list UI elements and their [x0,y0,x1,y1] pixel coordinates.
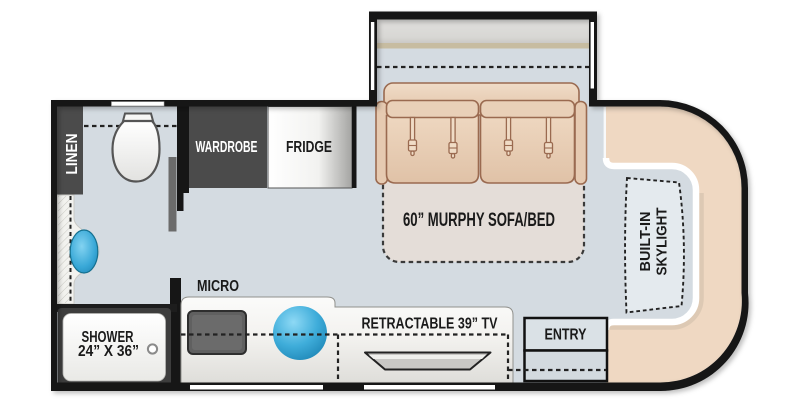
svg-text:24” X 36”: 24” X 36” [78,343,139,360]
svg-text:RETRACTABLE 39” TV: RETRACTABLE 39” TV [362,316,498,333]
svg-text:ENTRY: ENTRY [545,327,588,344]
svg-text:WARDROBE: WARDROBE [196,139,258,156]
svg-text:LINEN: LINEN [64,134,81,175]
svg-text:FRIDGE: FRIDGE [286,139,332,156]
svg-text:BUILT-IN: BUILT-IN [637,212,654,272]
svg-text:60” MURPHY SOFA/BED: 60” MURPHY SOFA/BED [403,210,555,231]
svg-text:SKYLIGHT: SKYLIGHT [654,208,671,276]
svg-text:MICRO: MICRO [197,278,239,295]
